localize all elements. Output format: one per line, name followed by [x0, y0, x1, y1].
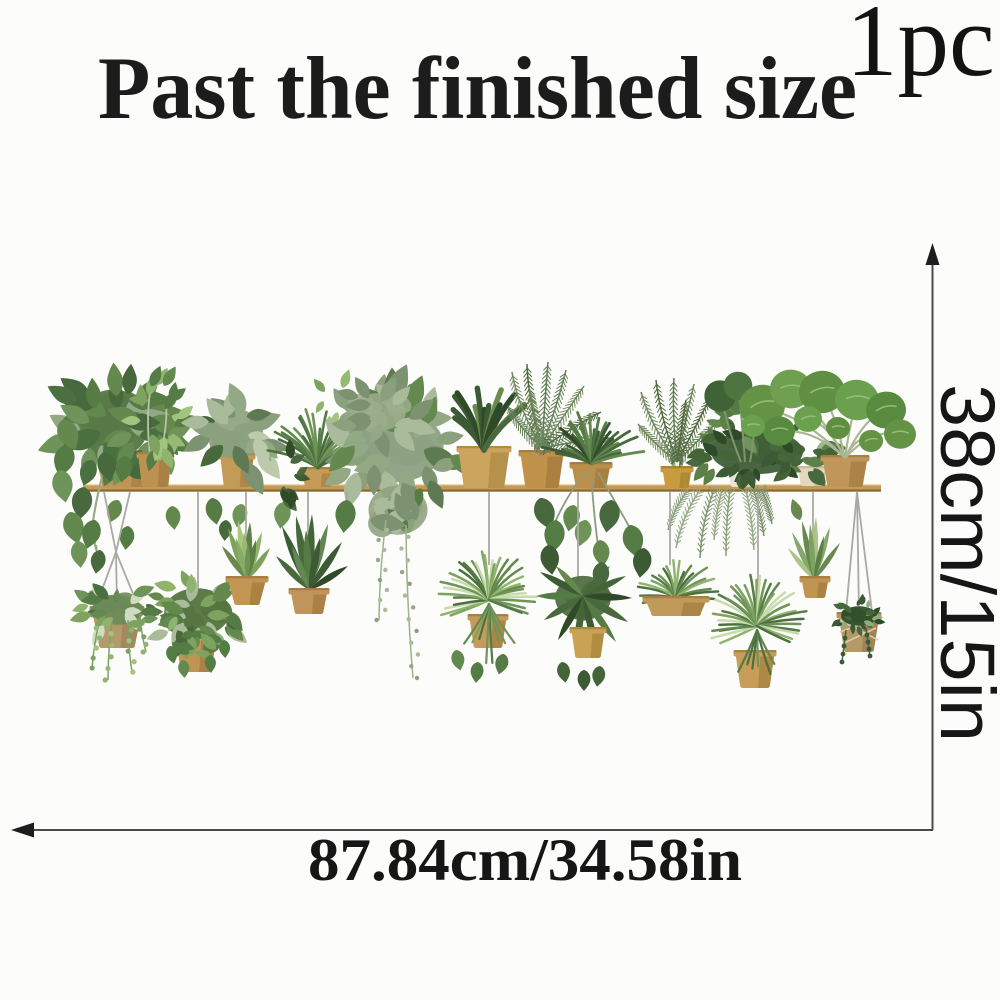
svg-text:87.84cm/34.58in: 87.84cm/34.58in — [308, 827, 742, 893]
svg-text:38cm/15in: 38cm/15in — [924, 384, 1000, 742]
svg-text:Past the finished size: Past the finished size — [98, 40, 857, 138]
svg-text:1pc: 1pc — [846, 0, 995, 98]
